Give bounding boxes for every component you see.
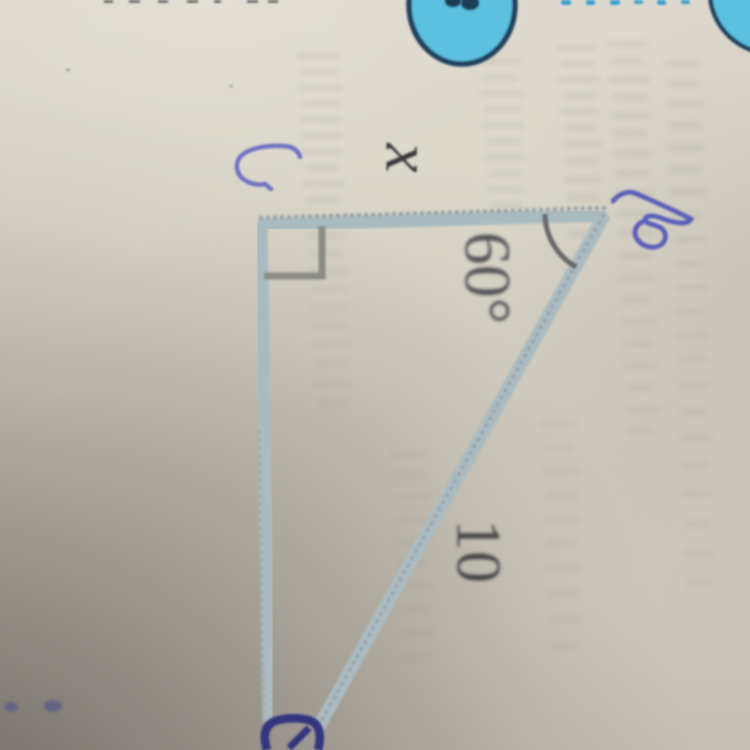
svg-text:60°: 60°: [451, 232, 524, 324]
svg-text:10: 10: [444, 519, 515, 583]
svg-text:x: x: [372, 142, 445, 172]
